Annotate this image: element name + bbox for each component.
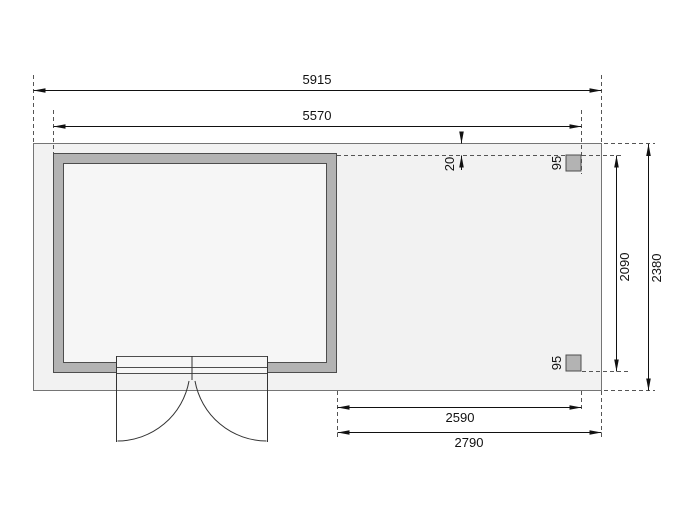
dim-label-2590: 2590 [430, 411, 490, 425]
dim-label-5915: 5915 [287, 73, 347, 87]
dim-label-2790: 2790 [439, 436, 499, 450]
double-door [116, 355, 268, 442]
dim-label-95-top: 95 [550, 133, 564, 193]
dim-label-95-bottom: 95 [550, 333, 564, 393]
dim-label-20: 20 [443, 134, 457, 194]
floor-plan-canvas: 5915 5570 2590 2790 2090 2380 20 95 95 [0, 0, 700, 525]
post-bottom [566, 355, 581, 371]
dim-label-5570: 5570 [287, 109, 347, 123]
cabin-inner-floor [63, 163, 327, 363]
dim-label-2090: 2090 [618, 237, 632, 297]
floor-plan-drawing [0, 0, 700, 525]
dim-label-2380: 2380 [650, 238, 664, 298]
post-top [566, 155, 581, 171]
